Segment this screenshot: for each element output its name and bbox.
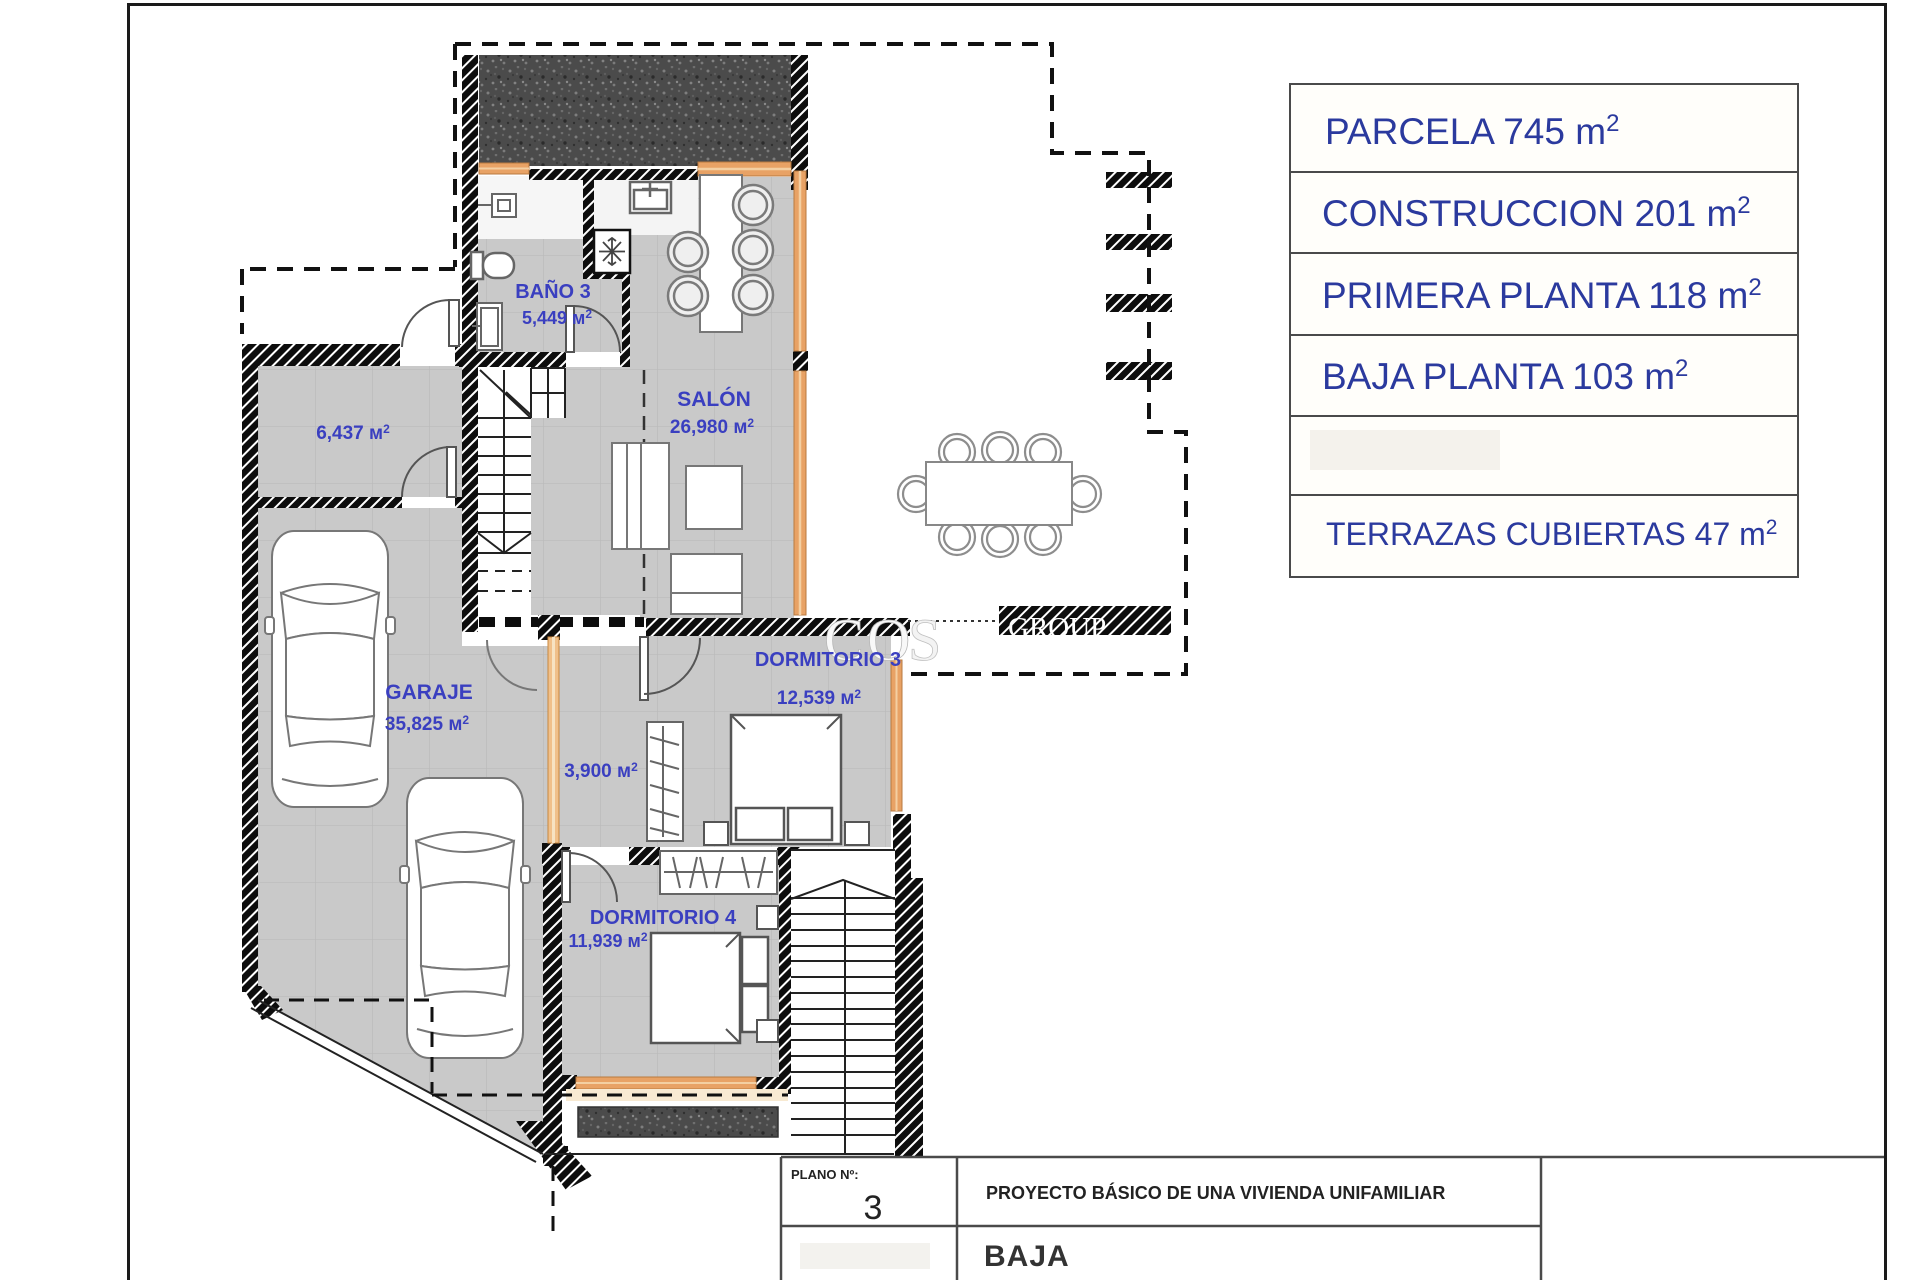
svg-text:DORMITORIO 3: DORMITORIO 3 [755, 649, 901, 671]
svg-text:12,539 м2: 12,539 м2 [777, 687, 861, 709]
svg-text:5,449 м2: 5,449 м2 [522, 307, 592, 328]
svg-text:PARCELA 745 m2: PARCELA 745 m2 [1325, 110, 1619, 152]
svg-text:BAJA PLANTA 103 m2: BAJA PLANTA 103 m2 [1322, 355, 1688, 397]
svg-text:6,437 м2: 6,437 м2 [316, 422, 390, 444]
svg-text:S: S [908, 607, 941, 673]
svg-text:PLANO Nº:: PLANO Nº: [791, 1167, 859, 1182]
svg-text:DORMITORIO 4: DORMITORIO 4 [590, 907, 737, 929]
svg-text:11,939 м2: 11,939 м2 [568, 930, 647, 951]
svg-text:PRIMERA PLANTA 118 m2: PRIMERA PLANTA 118 m2 [1322, 274, 1762, 316]
svg-text:GROUP: GROUP [1008, 612, 1106, 644]
svg-text:35,825 м2: 35,825 м2 [385, 713, 469, 735]
svg-text:BAJA: BAJA [984, 1240, 1070, 1273]
svg-text:3: 3 [864, 1189, 883, 1227]
svg-text:TERRAZAS CUBIERTAS 47 m2: TERRAZAS CUBIERTAS 47 m2 [1326, 516, 1777, 552]
svg-text:26,980 м2: 26,980 м2 [670, 416, 754, 438]
svg-text:BAÑO 3: BAÑO 3 [515, 280, 591, 303]
svg-text:PROYECTO BÁSICO DE UNA VIVIEND: PROYECTO BÁSICO DE UNA VIVIENDA UNIFAMIL… [986, 1182, 1445, 1203]
svg-text:3,900 м2: 3,900 м2 [564, 760, 638, 782]
svg-text:SALÓN: SALÓN [677, 387, 751, 411]
svg-text:CONSTRUCCION 201 m2: CONSTRUCCION 201 m2 [1322, 192, 1751, 234]
svg-text:GARAJE: GARAJE [385, 681, 473, 704]
